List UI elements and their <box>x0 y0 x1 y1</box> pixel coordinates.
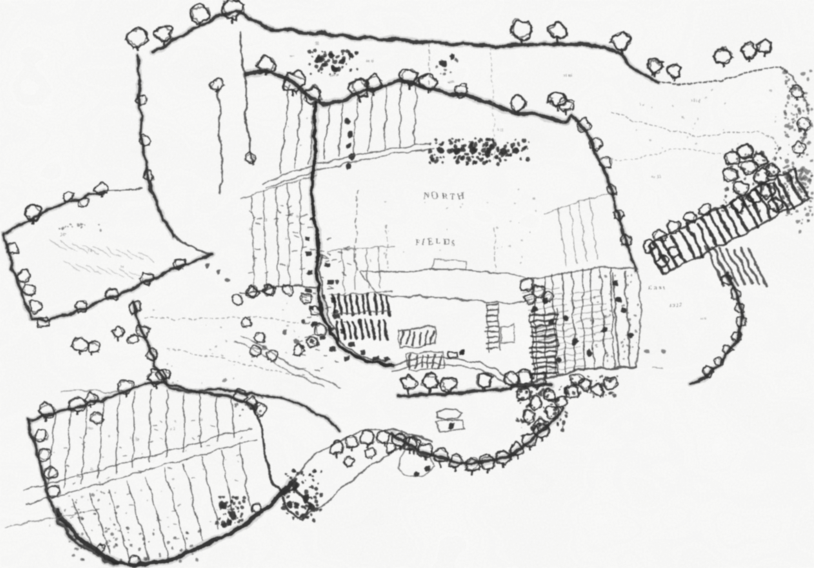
svg-text:4 3 3 2: 4 3 3 2 <box>668 304 682 309</box>
svg-text:ta vi: ta vi <box>366 58 374 63</box>
svg-text:31 mi: 31 mi <box>563 73 573 78</box>
svg-text:N O R T H: N O R T H <box>423 192 465 202</box>
svg-text:1a: 1a <box>284 237 288 241</box>
svg-text:E a s t: E a s t <box>648 284 665 292</box>
svg-text:ii: ii <box>287 263 289 267</box>
svg-text:no: no <box>289 54 293 58</box>
svg-text:x 2: x 2 <box>170 427 175 431</box>
svg-text:1 4: 1 4 <box>88 248 93 253</box>
svg-text:x1: x1 <box>560 237 564 241</box>
svg-text:m x: m x <box>700 316 706 321</box>
svg-text:iii: iii <box>200 417 203 421</box>
svg-text:ii: ii <box>250 227 252 231</box>
svg-text:iv: iv <box>296 215 299 219</box>
svg-text:xx 11: xx 11 <box>652 173 661 178</box>
svg-text:1 w: 1 w <box>638 102 644 107</box>
svg-text:4: 4 <box>356 113 358 117</box>
svg-text:50: 50 <box>316 41 320 45</box>
svg-text:3 no: 3 no <box>86 427 93 431</box>
svg-text:3: 3 <box>414 117 416 121</box>
svg-text:x 4 s 4: x 4 s 4 <box>690 98 701 103</box>
svg-text:14 3a: 14 3a <box>130 436 139 441</box>
svg-text:5 13: 5 13 <box>498 127 505 132</box>
svg-text:F I E L D s: F I E L D s <box>414 238 456 248</box>
svg-text:21: 21 <box>90 467 94 471</box>
svg-text:x: x <box>266 219 268 223</box>
svg-text:ii: ii <box>306 117 308 121</box>
svg-text:bal gi: bal gi <box>330 72 340 77</box>
svg-text:x: x <box>288 125 290 129</box>
svg-text:247: 247 <box>60 232 66 237</box>
svg-text:xx: xx <box>120 264 124 269</box>
svg-text:wm: wm <box>448 80 455 85</box>
svg-text:7: 7 <box>190 497 192 501</box>
svg-text:x: x <box>110 517 112 521</box>
